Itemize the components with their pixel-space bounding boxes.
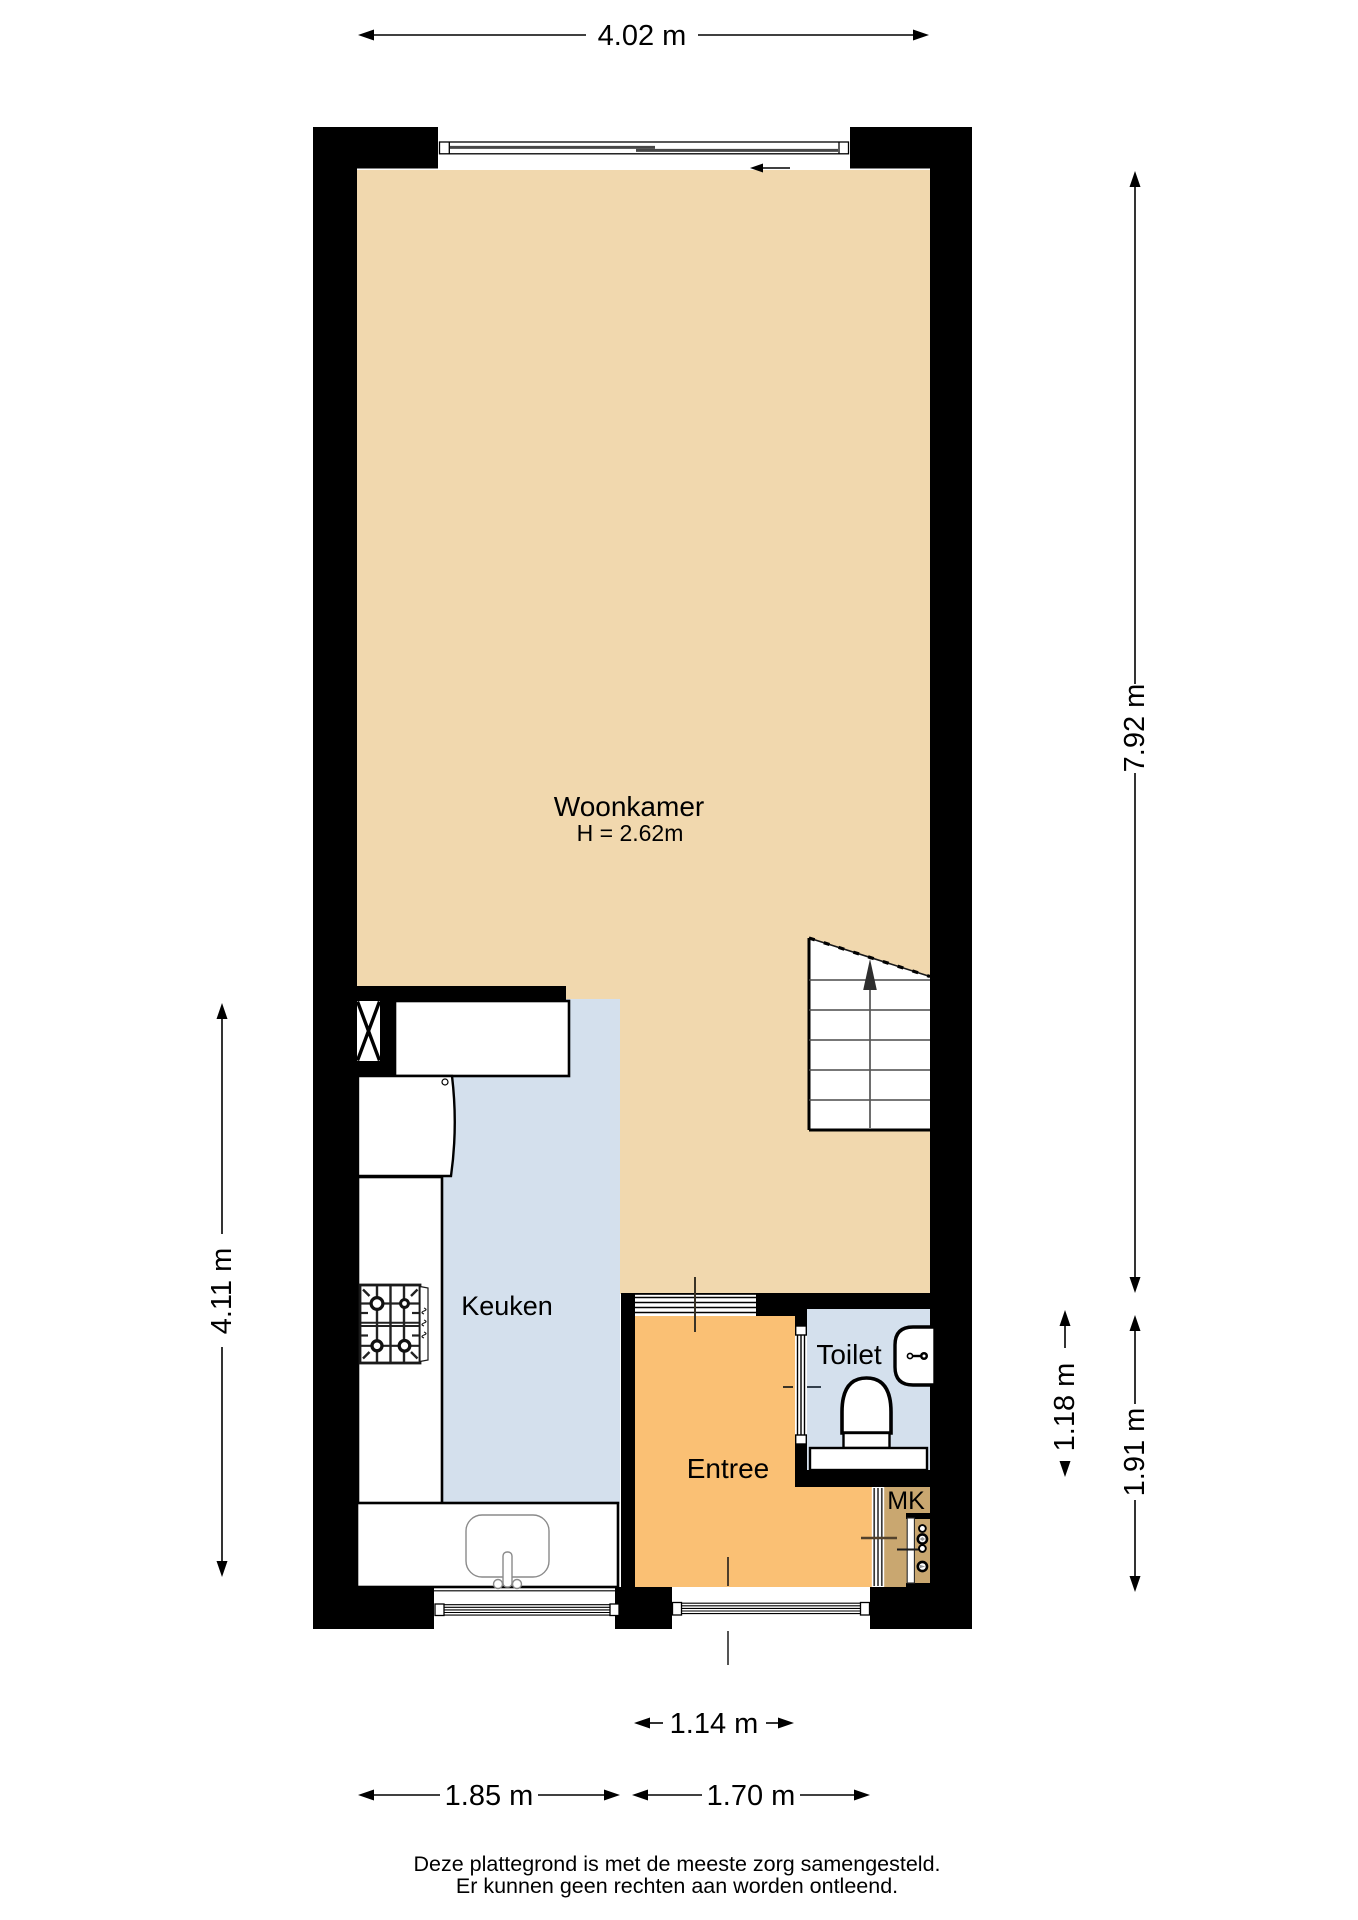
svg-text:Deze plattegrond is met de mee: Deze plattegrond is met de meeste zorg s… xyxy=(413,1852,940,1876)
svg-text:H = 2.62m: H = 2.62m xyxy=(577,820,684,846)
svg-text:1.18 m: 1.18 m xyxy=(1049,1363,1081,1452)
svg-text:Entree: Entree xyxy=(687,1453,770,1484)
svg-text:Woonkamer: Woonkamer xyxy=(554,791,704,822)
svg-text:1.14 m: 1.14 m xyxy=(670,1708,759,1740)
svg-text:4.11 m: 4.11 m xyxy=(206,1248,238,1335)
svg-text:1.91 m: 1.91 m xyxy=(1119,1408,1151,1497)
svg-text:MK: MK xyxy=(887,1487,925,1515)
svg-text:1.70 m: 1.70 m xyxy=(707,1780,796,1812)
svg-text:7.92 m: 7.92 m xyxy=(1119,684,1151,773)
svg-text:Keuken: Keuken xyxy=(461,1291,553,1321)
svg-text:Er kunnen geen rechten aan wor: Er kunnen geen rechten aan worden ontlee… xyxy=(456,1874,898,1898)
svg-text:1.85 m: 1.85 m xyxy=(445,1780,534,1812)
svg-text:Toilet: Toilet xyxy=(816,1339,882,1370)
svg-text:4.02 m: 4.02 m xyxy=(598,20,687,52)
